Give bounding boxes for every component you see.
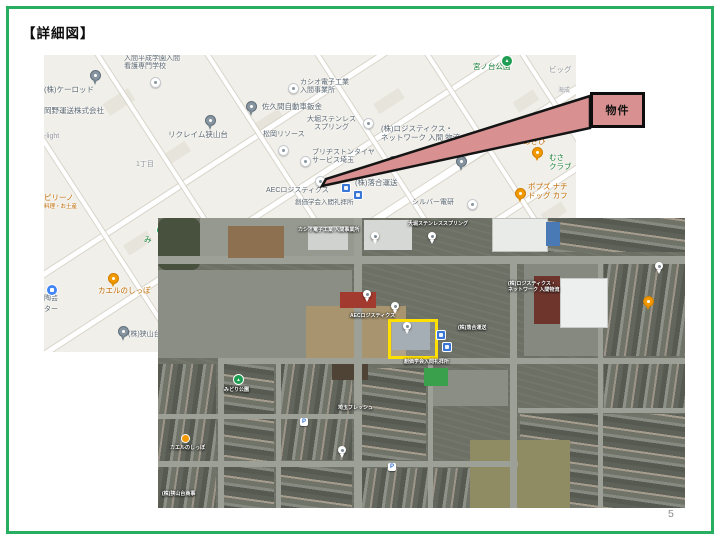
- sat-kaeru-dot: [181, 434, 190, 443]
- label-midori-partial: み: [144, 236, 152, 245]
- property-callout: 物件: [590, 92, 645, 128]
- label-pirino-sub: 料理・お土産: [44, 204, 77, 210]
- label-aec-logistics: AECロジスティクス: [266, 187, 329, 195]
- pin-pops-cafe-icon: [515, 188, 526, 199]
- dot-bridgestone-icon: [300, 156, 311, 167]
- sat-parking-icon-1: [300, 418, 308, 426]
- dot-silver-icon: [467, 199, 478, 210]
- label-logistics-network: (株)ロジスティクス・ ネットワーク 入間 物流: [381, 125, 460, 142]
- label-light: -light: [44, 133, 59, 141]
- dot-school-icon: [150, 77, 161, 88]
- satellite-map-image: カシオ電子工業 入間事業所大堀ステンレススプリングAECロジスティクス(株)落合…: [158, 218, 685, 508]
- label-1-chome: 1丁目: [136, 161, 154, 169]
- label-asahi: あさひ: [523, 138, 546, 147]
- sat-orange-pin: [643, 296, 654, 307]
- miyanodai-park-icon: [501, 55, 513, 67]
- dot-matsuoka-icon: [278, 145, 289, 156]
- dot-aec-icon: [315, 176, 326, 187]
- sat-label-soka: 創価学会入間礼拝所: [404, 360, 449, 366]
- label-casio: カシオ電子工業 入間事業所: [300, 79, 349, 95]
- sat-pin-2: [391, 302, 399, 310]
- label-soka-gakkai: 創価学会入間礼拝所: [295, 199, 354, 206]
- sat-pin-4: [428, 232, 436, 240]
- sat-label-fresh: 埼玉フレッシュ: [338, 406, 373, 412]
- sat-store-icon-1: [436, 330, 446, 340]
- label-musa-club: むさ クラブ: [549, 154, 572, 171]
- store-icon-1: [341, 183, 351, 193]
- sat-label-sayamadai: (株)狭山台商事: [162, 492, 195, 498]
- store-icon-2: [353, 190, 363, 200]
- pin-asahi-food-icon: [532, 147, 543, 158]
- label-pops-dog-cafe: ポプズ ナチ ドッグ カフ: [528, 183, 568, 200]
- blue-circle-icon: [46, 284, 58, 296]
- property-callout-label: 物件: [606, 102, 630, 118]
- label-matsuoka-resource: 松岡リソース: [263, 131, 305, 139]
- sat-label-midori-park: みどり公園: [224, 388, 249, 394]
- label-ohori-stainless: 大堀ステンレス スプリング: [307, 116, 356, 132]
- sat-label-ohori: 大堀ステンレススプリング: [408, 222, 468, 228]
- sat-pin-6: [338, 446, 346, 454]
- pin-k-rod: [90, 70, 101, 81]
- sat-parking-icon-2: [388, 463, 396, 471]
- label-silver-denken: シルバー電研: [412, 199, 454, 207]
- dot-casio-icon: [288, 83, 299, 94]
- sat-label-aec: AECロジスティクス: [350, 314, 395, 320]
- pin-kaeru-food-icon: [108, 273, 119, 284]
- label-ochiai-transport: (株)落合運送: [355, 179, 398, 188]
- sat-label-kaeru: カエルのしっぽ: [170, 446, 205, 452]
- label-bridgestone-tire: ブリヂストンタイヤ サービス埼玉: [312, 149, 375, 165]
- sat-store-icon-2: [442, 342, 452, 352]
- sat-label-ochiai: (株)落合運送: [458, 326, 486, 332]
- page: 【詳細図】 入間平成学園入間 看護専門学校(株)ケーロッドカシオ電子工業 入間事…: [0, 0, 720, 540]
- satellite-poi-layer: カシオ電子工業 入間事業所大堀ステンレススプリングAECロジスティクス(株)落合…: [158, 218, 685, 508]
- label-k-rod: (株)ケーロッド: [44, 86, 94, 95]
- label-tougei-partial: 陶芸: [44, 295, 58, 303]
- sat-pin-red-building: [363, 290, 371, 298]
- sat-pin-property: [403, 322, 411, 330]
- label-pirino: ピリーノ: [44, 194, 74, 203]
- label-iruma-heisei-gakuen: 入間平成学園入間 看護専門学校: [124, 55, 180, 71]
- pin-sayamadai-shoji: [118, 326, 129, 337]
- label-big: ビッグ: [549, 66, 572, 75]
- label-sakuma-auto: 佐久間自動車鈑金: [262, 103, 322, 112]
- page-number: 5: [668, 508, 674, 520]
- sat-midori-park-icon: [233, 374, 244, 385]
- sat-label-casio: カシオ電子工業 入間事業所: [298, 228, 359, 234]
- label-kaeru-no-shippo: カエルのしっぽ: [98, 287, 151, 296]
- label-reclaim-sayamadai: リクレイム狭山台: [168, 131, 228, 140]
- dot-ohori-icon: [363, 118, 374, 129]
- label-kaisei: 海成: [558, 88, 570, 95]
- pin-sakuma: [246, 101, 257, 112]
- sat-label-logistics: (株)ロジスティクス・ ネットワーク 入間物流: [508, 282, 559, 294]
- pin-reclaim: [205, 115, 216, 126]
- sat-pin-3: [371, 232, 379, 240]
- sat-pin-5: [655, 262, 663, 270]
- pin-logistics: [456, 156, 467, 167]
- label-okano-transport: 岡野運送株式会社: [44, 107, 104, 116]
- label-ta-partial: ター: [44, 306, 58, 314]
- page-title: 【詳細図】: [22, 22, 95, 42]
- pin-ochiai: [388, 156, 399, 167]
